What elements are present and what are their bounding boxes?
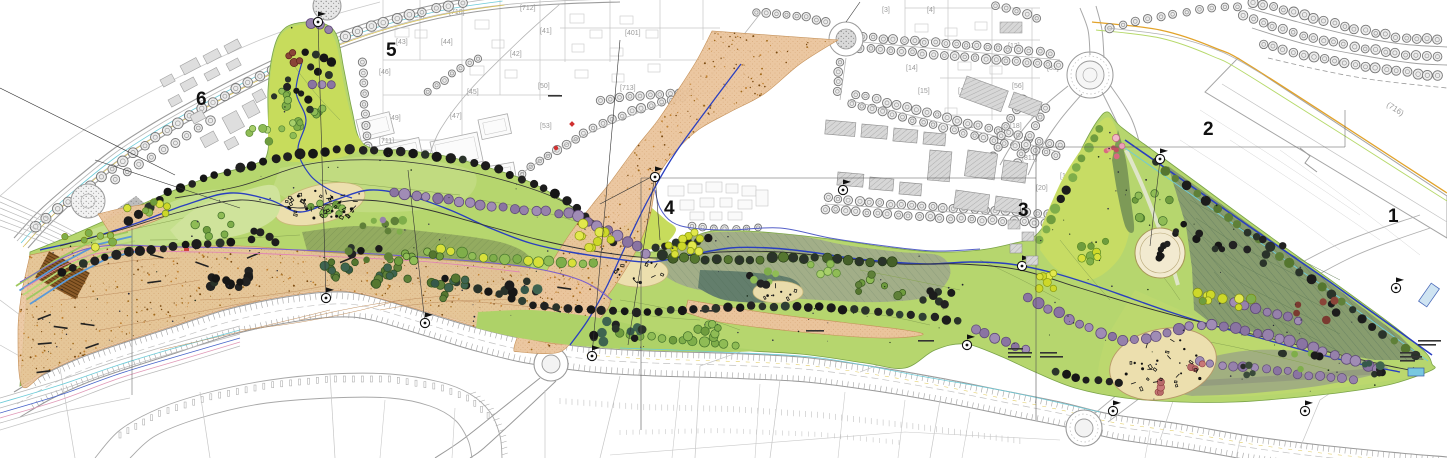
svg-text:6: 6 <box>196 89 207 110</box>
svg-text:[41]: [41] <box>540 28 552 35</box>
svg-text:2: 2 <box>1203 119 1214 140</box>
svg-text:[46]: [46] <box>379 69 391 76</box>
svg-text:[45]: [45] <box>467 89 479 96</box>
svg-text:[53]: [53] <box>540 123 552 130</box>
svg-text:4: 4 <box>664 198 675 219</box>
svg-text:[56]: [56] <box>1012 83 1024 90</box>
svg-text:3: 3 <box>1018 200 1029 221</box>
svg-text:[3]: [3] <box>882 7 890 14</box>
svg-text:[14]: [14] <box>906 65 918 72</box>
svg-text:[713]: [713] <box>620 85 636 92</box>
svg-text:[47]: [47] <box>450 113 462 120</box>
svg-text:[4]: [4] <box>927 7 935 14</box>
svg-text:[50]: [50] <box>538 83 550 90</box>
svg-text:5: 5 <box>386 40 397 61</box>
svg-text:[401]: [401] <box>625 30 641 37</box>
svg-text:[42]: [42] <box>510 51 522 58</box>
svg-text:1: 1 <box>1388 206 1399 227</box>
svg-text:[44]: [44] <box>441 39 453 46</box>
svg-text:[43]: [43] <box>396 39 408 46</box>
svg-text:[20]: [20] <box>1036 185 1048 192</box>
svg-text:[15]: [15] <box>918 88 930 95</box>
